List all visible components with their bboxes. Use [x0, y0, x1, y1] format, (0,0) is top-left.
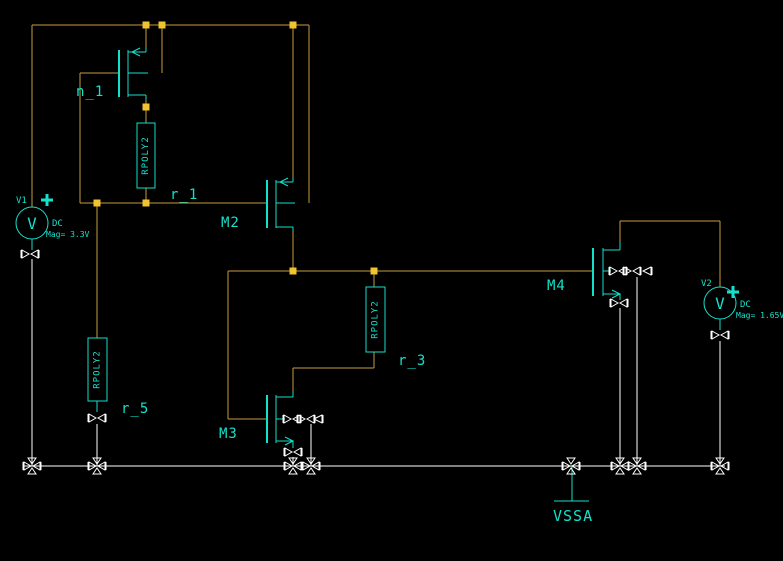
plus-polarity-icon — [41, 194, 53, 206]
drain-stub[interactable] — [276, 227, 293, 232]
wire-segment[interactable] — [228, 230, 593, 419]
pin-icon[interactable] — [284, 448, 302, 456]
drain-stub[interactable] — [603, 241, 620, 250]
device-label: r_3 — [398, 353, 426, 369]
net-vdd-rail[interactable] — [32, 25, 309, 207]
resistor-model-label: RPOLY2 — [93, 350, 103, 389]
drain-stub[interactable] — [128, 95, 146, 100]
wire-segment[interactable] — [32, 25, 309, 207]
source-dc-label: DC — [52, 219, 63, 229]
net-r3-to-m3-drain[interactable] — [293, 352, 374, 393]
pin-icon[interactable] — [88, 414, 106, 422]
transistor-m3[interactable]: M3 — [219, 392, 293, 448]
drain-stub[interactable] — [276, 392, 293, 397]
pin-icon[interactable] — [21, 250, 39, 258]
junction-dot — [290, 22, 297, 29]
junction-dot — [143, 104, 150, 111]
device-label: n_1 — [76, 84, 104, 100]
junction-dot — [143, 200, 150, 207]
voltage-source-v2[interactable]: V V2 DC Mag= 1.65V — [701, 279, 783, 330]
pin-icon[interactable] — [643, 267, 652, 275]
source-designator: V1 — [16, 196, 27, 206]
junction-dot — [371, 268, 378, 275]
net-center-node[interactable] — [228, 230, 593, 419]
source-mag-label: Mag= 1.65V — [736, 311, 783, 320]
resistor-model-label: RPOLY2 — [141, 136, 151, 175]
pin-icon[interactable] — [711, 331, 729, 339]
transistor-m2[interactable]: M2 — [221, 177, 295, 232]
net-bias-node[interactable] — [80, 73, 267, 338]
net-m4-drain-to-v2[interactable] — [620, 221, 720, 287]
device-label: r_1 — [170, 187, 198, 203]
junction-dot — [94, 200, 101, 207]
schematic-canvas: n_1 M2 M3 M4 RPOLY2 r_1 RP — [0, 0, 783, 561]
resistor-model-label: RPOLY2 — [371, 300, 381, 339]
pin-icon[interactable] — [610, 299, 628, 307]
source-symbol-letter: V — [27, 214, 37, 233]
wire-segment[interactable] — [620, 221, 720, 287]
source-symbol-letter: V — [715, 294, 725, 313]
ground-net-label: VSSA — [553, 507, 593, 525]
source-designator: V2 — [701, 279, 712, 289]
resistor-r5[interactable]: RPOLY2 r_5 — [88, 338, 149, 417]
wire-segment[interactable] — [80, 73, 267, 338]
source-dc-label: DC — [740, 300, 751, 310]
device-label: r_5 — [121, 401, 149, 417]
device-label: M3 — [219, 426, 238, 442]
source-mag-label: Mag= 3.3V — [46, 230, 90, 239]
junction-dot — [290, 268, 297, 275]
plus-polarity-icon — [727, 286, 739, 298]
junction-dot — [143, 22, 150, 29]
wire-segment[interactable] — [293, 352, 374, 393]
device-label: M2 — [221, 215, 240, 231]
ground-vssa[interactable]: VSSA — [553, 466, 593, 525]
resistor-r3[interactable]: RPOLY2 r_3 — [366, 287, 426, 369]
junction-dot — [159, 22, 166, 29]
voltage-source-v1[interactable]: V V1 DC Mag= 3.3V — [16, 194, 90, 250]
device-label: M4 — [547, 278, 566, 294]
